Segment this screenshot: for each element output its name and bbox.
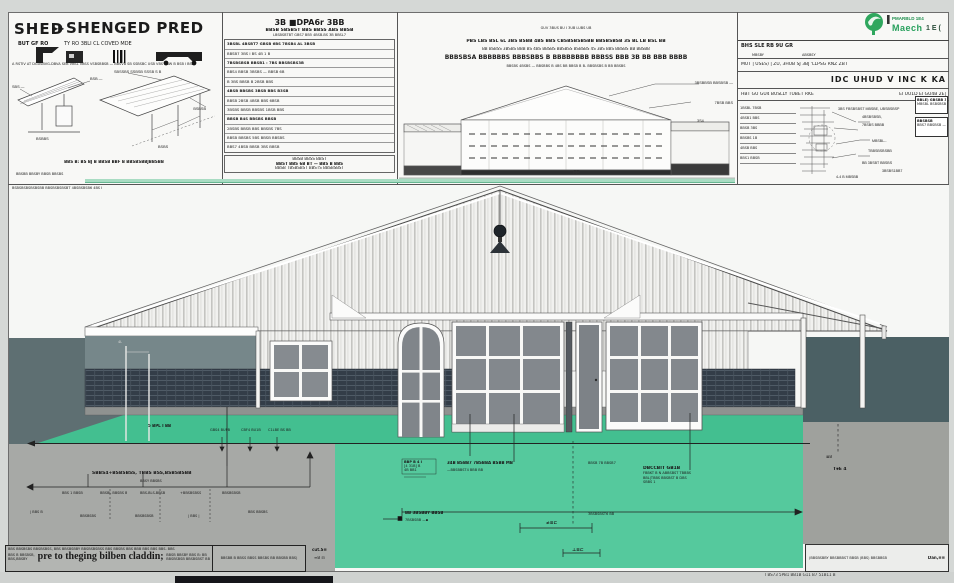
tb-box-line: BBS7 BBSBSB — (917, 123, 946, 127)
spec-row: 2BSBS BBSB BBS BBSBS 7BS (225, 125, 394, 134)
title-marks: ▶▶ (52, 24, 64, 34)
right-base (671, 164, 729, 175)
tb-mini-row: BBSBS 1B (740, 134, 796, 144)
panel-shed-details: SHED ▶▶ SHENGED PRED BUT GF RO TY RO 3BL… (8, 12, 222, 184)
tb-line (738, 88, 949, 89)
bottom-right-box: (BBSBSBBY BBSBBBST BBSB (BBS) BBSBBSB Da… (805, 544, 949, 572)
block-line: SBBS 1 (643, 480, 753, 484)
micro-note-line: A RSTIV AT DGUSBVG-DBVA SEB VBSL VBSS VS… (12, 62, 218, 66)
downpipe (566, 322, 572, 432)
note-left-line: BBS,BBSBY (8, 557, 35, 561)
brand-top-text: PMARBLD 1E4 (892, 16, 924, 21)
tb-row3-left: HBT GU GU4 BUSLLY TUBET RKE (741, 92, 814, 97)
small-gable (461, 86, 671, 120)
schem-label: BB 3BSBT BBSBS (862, 161, 893, 165)
spec-row: B 3BS BBSB B 2BSB BBS (225, 78, 394, 87)
tb-mini-row: 4BSB BBS (740, 144, 796, 154)
spec-row: BBSB 2BSB 4BSB BBS 6BSB (225, 97, 394, 106)
elev-leader: 7BSB BBS (715, 101, 734, 105)
note-box-2: BBSBB B BBSS BBSS BBSBS BB BBSBB BBS) (213, 545, 306, 572)
veranda-post (801, 318, 806, 408)
spec-row: BBS7 4BSB BBSB 3BS BBSB (225, 143, 394, 151)
arched-door (398, 323, 444, 437)
panel-title-block: PMARBLD 1E4 Maech 1 E ( BHS SLE RB 9U GR… (738, 12, 949, 184)
left-annotation-header: SBBS4+BSBSBSS, TBBS BSS,BSBSBSBB (92, 471, 192, 476)
porch-interior (85, 336, 258, 369)
dimension-text: ≠≡⊏ (546, 521, 557, 526)
iso-label: SBS — (12, 85, 25, 89)
bottom-micro-text: I BS73 5PB1 BB1B G11 B7 51B11 B (765, 573, 836, 578)
left-annotation-subheader: BBSY BBSBS (140, 479, 162, 483)
leader-label: +BBSBSBSS (180, 491, 201, 495)
teal-main-label2: —BBSBBST4 BBB BB (447, 468, 483, 472)
porch-soffit (85, 327, 258, 336)
spec-row: BBSB BBSBS 5BS BBSB BBSBS (225, 134, 394, 143)
panel-divider (397, 12, 398, 184)
note-right-stack: BBSB BBSBY BBS B: BB BBSBSBSB BBSBSBST B… (166, 553, 210, 561)
tb-line (738, 40, 949, 41)
teal-box-line: 4B BB1 (404, 468, 422, 472)
elev-leader: 3S4 (697, 119, 704, 123)
leader-label: | BBS | (188, 514, 200, 518)
teal-right-text-block: DBCCBIT GB1B FBBKT B N ABBSBST TBBBS BBL… (643, 466, 753, 484)
elev-line3: BBBSBSA BBBBBBS BBBSBBS B BBBBBBBB BBBSS… (401, 54, 731, 61)
spec-title: 3B ■DPA6r 3BB (224, 18, 395, 28)
leader-label: BBSBL BBSBS B (100, 491, 127, 495)
spec-row: BBS4 BBSB 3BSBS — BBSB 6B (225, 68, 394, 77)
rod-label: 4L (118, 340, 122, 344)
tb-big-title: IDC UHUD V INC K KA (778, 75, 946, 85)
leader-label: BBS-BLS-BBSB (140, 491, 165, 495)
door-b (576, 322, 602, 432)
bottom-dark-bar (175, 576, 333, 583)
leader-label: BBSBSBSB (135, 514, 154, 518)
schem-label: 7BSBS BBBB (862, 123, 885, 127)
center-base (461, 170, 671, 175)
panel-small-elevation: GUV 3BUS BU I 3UB LUBS UB PBS LBS BSL 6L… (399, 12, 735, 184)
spec-row: 7BSBSBSB BBSB1 : 7BS BBSBSBS3B (225, 59, 394, 68)
iso-label: BSBSB (193, 107, 206, 111)
note-left-stack: BBS B BBSBSB, BBS,BBSBY (8, 553, 35, 561)
elev-line1: PBS LBS BSL 6L 3BS BSBB 4BS BBS CBSBSBSB… (401, 39, 731, 44)
tb-mini-row: BBSB 3BS (740, 124, 796, 134)
schem-label: 4BSBSBSB, (862, 115, 882, 119)
iso-caption: BBS B: BS BJ B BBSB BBF B BBSBSBBJBBSBB (14, 160, 214, 165)
elev-leader: 3BSBBSB BBSBSB — (695, 81, 734, 85)
note-main-text: pre to theging bilben claddin; (38, 551, 164, 563)
drawing-sheet-page: SHED ▶▶ SHENGED PRED BUT GF RO TY RO 3BL… (0, 0, 954, 583)
leader-label: BBS BBSBS (248, 510, 268, 514)
tb-mini-table: 1BSBL 7BSB 4BSB1 BBS BBSB 3BS BBSBS 1B 4… (740, 104, 796, 164)
schem-label: 3BSBS1BB7 (882, 169, 902, 173)
isometric-roof-details: SBS — BSB — BSBBS SBSSBS SSBSB SSSB S B … (10, 68, 220, 160)
cut-label: cut.S≡ (312, 548, 327, 553)
tb-schematic: 3BS FBSBSBST MBSBE, UBSBSBSP 4BSBSBSB, 7… (796, 102, 914, 182)
leader-label: BBSBSBS (80, 514, 96, 518)
teal-low-label2: 7BSBSBB —▪ (405, 518, 428, 522)
ff-level-label: FF (573, 170, 580, 176)
tb-box-line: MBSBL BSBSBSBB (917, 102, 946, 106)
right-gray-zone (803, 422, 949, 544)
green-datum-line (85, 179, 735, 183)
drawing-micro-note: BSBSBSBSBSBSBB BBSBSBSBSBT 4BSBSBSB6 4BS… (12, 186, 102, 190)
iso-label: BSBBS (36, 137, 49, 141)
tb-row2: MUT | USES) | ZU, 3HUB SJ 3BJ 'LLPSG RNZ… (741, 62, 848, 67)
spec-grid: 3BSBL 4BSBT7 GBSB 6BS 7BSB4 AL 3BSB BBSB… (224, 39, 395, 153)
tb-mini-row: 1BSBL 7BSB (740, 104, 796, 114)
flag-icon (36, 47, 59, 63)
left-base (404, 166, 461, 175)
br-box-text: (BBSBSBBY BBSBBBST BBSB (BBS) BBSBBSB (809, 556, 887, 560)
brand-name-text: Maech (892, 23, 923, 33)
teal-low-label: BB 3BSBBY BBSB (405, 511, 443, 516)
band-label: 5 BPL I BB (148, 424, 171, 429)
eave-beam (330, 313, 803, 320)
right-slate-backdrop (803, 337, 949, 422)
veranda-fascia (882, 326, 886, 339)
spec-row: 4BSB BBSBS 3BSB BBS B3SB (225, 87, 394, 96)
panel-spec-table: 3B ■DPA6r 3BB BBSB SBSBST BBS BBSS ABS B… (224, 14, 395, 182)
panel-divider (222, 12, 223, 184)
spec-row: BBSB B4S BBSBS BBSB (225, 115, 394, 124)
dimension-text: ⊥≡⊏ (572, 548, 584, 553)
spec-subtitle2: LBSBSBTBT GBS7 BB5 4BSB-BS 3B BBSL7 (224, 33, 395, 37)
note-box-cladding: BBS BBSBSBS BBSBSBSS, BBS BBSBSBBY BBSBS… (5, 545, 213, 572)
spec-row: 3BSBS BBSB BBSBS 1BSB BBS (225, 106, 394, 115)
left-wing-roof (404, 124, 461, 132)
tb-edge-box-top: BBLE) GBSBB 3T MBSBL BSBSBSBB (915, 96, 948, 114)
brand-logo: PMARBLD 1E4 Maech 1 E ( (862, 6, 950, 40)
porch-post (256, 331, 260, 408)
brand-tail-text: 1 E ( (926, 25, 941, 32)
tb-mini-row: BBS1 BBSB (740, 154, 796, 164)
glazed-door-unit-a (452, 322, 564, 432)
band-tick-label: C1LBE BS BB (268, 428, 291, 432)
spec-footer-line: BBSB TBSBSBST BBSTS BBSBSBST (225, 166, 394, 171)
teal-label-box: BBP B 4 I [4 31B] B 4B BB1 (404, 460, 422, 473)
tb-mini-row: 4BSB1 BBS (740, 114, 796, 124)
schem-label: 4-4 B MBSBB (836, 175, 859, 179)
gray-zone-mark2: T⚹E 4 (833, 467, 847, 472)
panel-title-shenged: SHENGED PRED (66, 19, 204, 37)
tb-line (738, 71, 949, 72)
tb-row1b-right: ABSBSY (802, 53, 816, 57)
small-elevation-drawing: 3BSBBSB BBSBSB — 7BSB BBS 3S4 FF (399, 74, 735, 184)
tb-edge-box-bottom: BBSBSB BBS7 BBSBSB — (915, 117, 948, 137)
note2-text: BBSBB B BBSS BBSS BBSBS BB BBSBB BBS) (213, 556, 305, 560)
schem-label: TBBSBSBSBB (868, 149, 892, 153)
logo-swirl-icon (865, 13, 883, 31)
br-box-right: Dan,≡≡ (928, 556, 945, 561)
iso-label: BSB — (90, 77, 103, 81)
band-tick-label: CBF4 BU1B (241, 428, 261, 432)
schem-label: 3BS FBSBSBST MBSBE, UBSBSBSP (838, 107, 900, 111)
spec-footer-box: BBSB BBSS BBST BBST BBS 6B BT — BBS B BB… (224, 155, 395, 173)
elev-micro-top: GUV 3BUS BU I 3UB LUBS UB (401, 26, 731, 30)
glazed-door-unit-c (606, 322, 702, 430)
iso-left-roof (18, 78, 90, 132)
iso-label: SBSSBS SSBSB SSSB S B (114, 70, 162, 74)
leader-label: BBSBSBSB (222, 491, 241, 495)
tb-row1b-left: MBSBY (752, 53, 764, 57)
teal-right-label: BBSB 7B BBSB7 (588, 461, 616, 465)
note-right-line: BBSBSBSB BBSBSBST BB (166, 557, 210, 561)
elev-line4: BBSBS 4BSBS — BBSBBS B 4BS BB BBSB B B- … (401, 64, 731, 68)
teal-low-right-label: 3BSBSBST6 BB (588, 512, 614, 516)
spec-row: BBSB7 3BS I BS 4B 1 B (225, 50, 394, 59)
tb-line (738, 58, 949, 59)
schem-label: MBSBL-- (872, 139, 887, 143)
tb-row1: BHS SLE RB 9U GR (741, 43, 793, 49)
left-window (270, 341, 332, 401)
right-wing-roof (671, 122, 729, 131)
veranda-post (860, 315, 865, 408)
band-tick-label: GBS4 BUPB (210, 428, 230, 432)
leader-label: BBS 1 BBSB (62, 491, 83, 495)
iso-footer: BBSBB BBSBY BBSB BBSBS (16, 172, 206, 176)
leader-label: | BBS B (30, 510, 43, 514)
cut-label2: ≡B ⊟ (314, 556, 325, 561)
spec-row: 3BSBL 4BSBT7 GBSB 6BS 7BSB4 AL 3BSB (225, 40, 394, 49)
gray-zone-mark: ≣B (826, 455, 832, 460)
iso-label: BSBS (158, 145, 169, 149)
teal-main-label: 34B BSBB7 7BSBBA BSBB MB (447, 461, 513, 466)
elev-line2: BB BSBSS 3BSBS BBB BS 4BS BBSBS BBSBSS B… (401, 47, 731, 52)
